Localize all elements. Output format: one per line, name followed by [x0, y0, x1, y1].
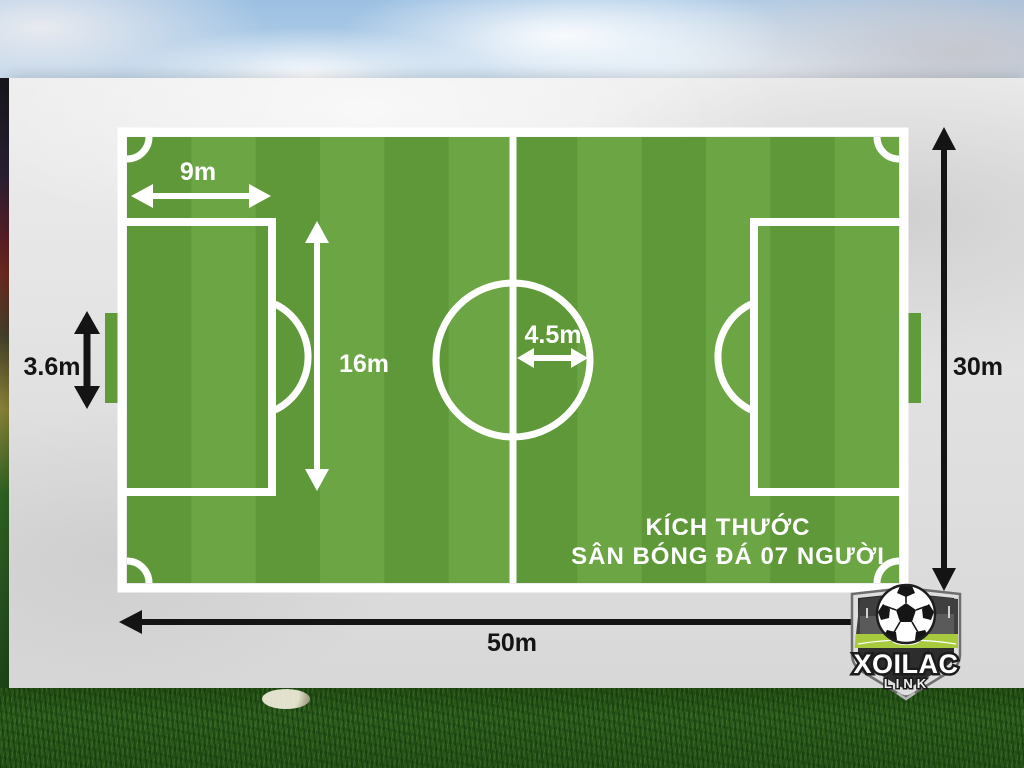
logo-brand-text: XOILAC [853, 649, 958, 679]
title-line-2: SÂN BÓNG ĐÁ 07 NGƯỜI [571, 542, 885, 570]
label-pitch-width: 30m [953, 353, 1003, 381]
label-center-radius: 4.5m [525, 321, 582, 349]
infographic-scene: 9m 16m 4.5m 3.6m 30m 50m KÍCH THƯỚC SÂN … [0, 0, 1024, 768]
label-penalty-length: 16m [339, 350, 389, 378]
pitch-diagram: 9m 16m 4.5m 3.6m 30m 50m KÍCH THƯỚC SÂN … [0, 0, 1024, 768]
logo-sub-text: LINK [884, 676, 930, 691]
label-penalty-width: 9m [180, 158, 216, 186]
title-line-1: KÍCH THƯỚC [645, 513, 810, 541]
label-pitch-length: 50m [487, 629, 537, 657]
label-goal-width: 3.6m [24, 353, 81, 381]
xoilac-logo: XOILAC LINK [852, 585, 960, 699]
logo-soccer-ball [877, 585, 935, 643]
